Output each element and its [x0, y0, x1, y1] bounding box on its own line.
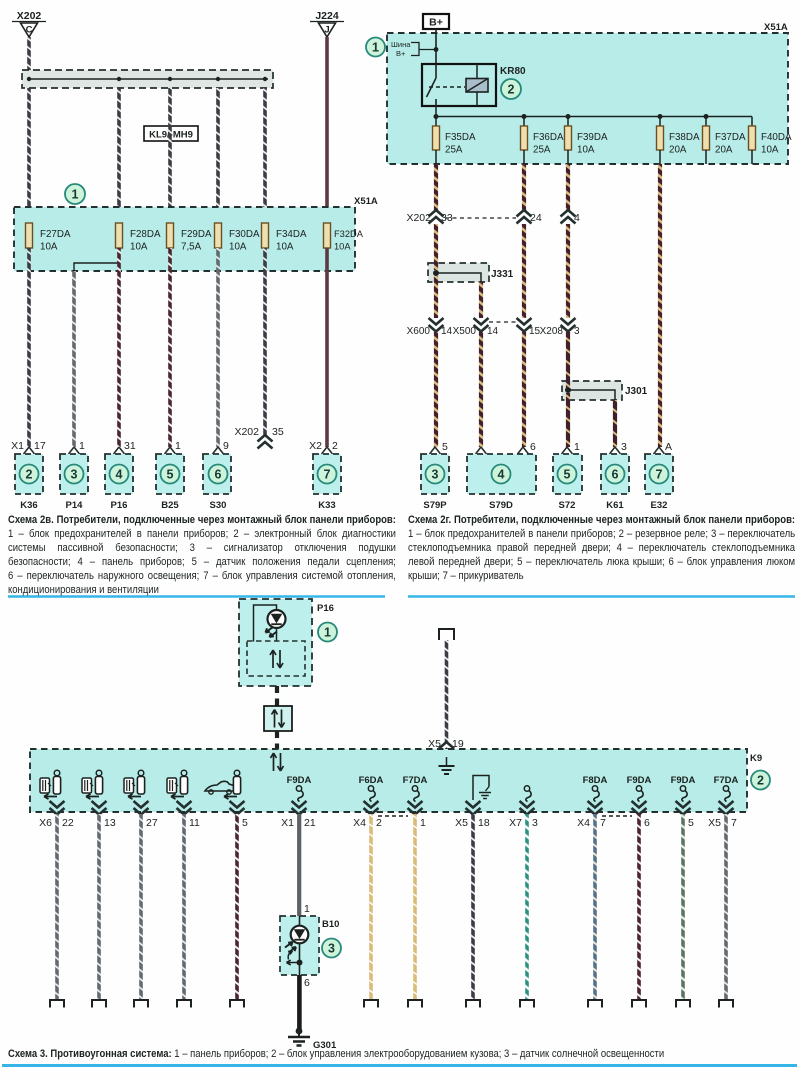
svg-text:E32: E32 — [651, 500, 668, 511]
svg-text:14: 14 — [487, 326, 499, 337]
svg-text:F27DA: F27DA — [40, 229, 71, 240]
svg-text:22: 22 — [62, 817, 74, 829]
svg-text:P14: P14 — [66, 500, 84, 511]
svg-text:K36: K36 — [20, 500, 37, 511]
svg-text:5: 5 — [688, 817, 694, 829]
svg-text:20A: 20A — [715, 145, 733, 156]
svg-text:A: A — [665, 441, 672, 453]
svg-text:S79D: S79D — [489, 500, 513, 511]
svg-text:1: 1 — [324, 626, 331, 640]
svg-text:F39DA: F39DA — [577, 132, 608, 143]
svg-text:X202: X202 — [234, 426, 259, 438]
svg-text:F8DA: F8DA — [583, 775, 608, 786]
svg-text:5: 5 — [564, 468, 571, 482]
svg-text:S30: S30 — [210, 500, 227, 511]
svg-text:5: 5 — [442, 441, 448, 453]
svg-text:F9DA: F9DA — [671, 775, 696, 786]
svg-text:X5: X5 — [708, 817, 721, 829]
svg-text:X4: X4 — [353, 817, 366, 829]
svg-text:F37DA: F37DA — [715, 132, 746, 143]
svg-text:F6DA: F6DA — [359, 775, 384, 786]
svg-text:X5: X5 — [455, 817, 468, 829]
svg-text:P16: P16 — [111, 500, 128, 511]
svg-text:2: 2 — [332, 440, 338, 452]
svg-text:F7DA: F7DA — [714, 775, 739, 786]
svg-text:5: 5 — [242, 817, 248, 829]
svg-text:7: 7 — [731, 817, 737, 829]
svg-text:6: 6 — [215, 468, 222, 482]
svg-text:F35DA: F35DA — [445, 132, 476, 143]
svg-text:F36DA: F36DA — [533, 132, 564, 143]
svg-text:6: 6 — [612, 468, 619, 482]
svg-text:F9DA: F9DA — [287, 775, 312, 786]
svg-text:10A: 10A — [577, 145, 595, 156]
svg-text:5: 5 — [167, 468, 174, 482]
svg-text:F28DA: F28DA — [130, 229, 161, 240]
svg-text:P16: P16 — [317, 603, 334, 614]
svg-text:31: 31 — [124, 440, 136, 452]
svg-text:S72: S72 — [559, 500, 576, 511]
svg-text:10A: 10A — [276, 242, 294, 253]
svg-text:K61: K61 — [606, 500, 624, 511]
svg-text:2: 2 — [508, 83, 515, 97]
svg-text:3: 3 — [432, 468, 439, 482]
svg-text:10A: 10A — [761, 145, 779, 156]
svg-text:X1: X1 — [11, 440, 24, 452]
svg-text:X51A: X51A — [764, 22, 788, 33]
svg-text:13: 13 — [104, 817, 116, 829]
svg-text:X208: X208 — [540, 326, 564, 337]
svg-text:20A: 20A — [669, 145, 687, 156]
svg-text:3: 3 — [71, 468, 78, 482]
svg-text:7: 7 — [324, 468, 331, 482]
svg-text:C: C — [26, 25, 33, 36]
svg-text:F38DA: F38DA — [669, 132, 700, 143]
svg-text:X6: X6 — [39, 817, 52, 829]
svg-text:K33: K33 — [318, 500, 335, 511]
svg-text:11: 11 — [189, 817, 200, 829]
svg-text:X202: X202 — [17, 10, 42, 22]
svg-text:7: 7 — [600, 817, 606, 829]
svg-text:J224: J224 — [315, 10, 339, 22]
svg-text:10A: 10A — [40, 242, 58, 253]
svg-text:1: 1 — [574, 441, 580, 453]
svg-text:X2: X2 — [309, 440, 322, 452]
svg-text:6: 6 — [644, 817, 650, 829]
svg-text:17: 17 — [34, 440, 46, 452]
svg-text:KR80: KR80 — [500, 66, 526, 77]
svg-text:1: 1 — [72, 188, 79, 202]
svg-text:2: 2 — [26, 468, 33, 482]
svg-text:21: 21 — [304, 817, 316, 829]
svg-text:3: 3 — [621, 441, 627, 453]
svg-text:9: 9 — [223, 440, 229, 452]
svg-text:25A: 25A — [445, 145, 463, 156]
svg-text:X202: X202 — [406, 212, 431, 224]
svg-text:1: 1 — [79, 440, 85, 452]
svg-text:4: 4 — [498, 468, 505, 482]
svg-text:7,5A: 7,5A — [181, 242, 202, 253]
svg-text:3: 3 — [328, 942, 335, 956]
svg-text:K9: K9 — [750, 753, 762, 764]
svg-text:3: 3 — [532, 817, 538, 829]
svg-text:35: 35 — [272, 426, 284, 438]
svg-text:X1: X1 — [281, 817, 294, 829]
svg-text:F7DA: F7DA — [403, 775, 428, 786]
svg-text:1: 1 — [420, 817, 426, 829]
svg-text:J: J — [324, 25, 329, 36]
svg-text:3: 3 — [574, 326, 580, 337]
svg-text:10A: 10A — [334, 242, 351, 252]
svg-text:B+: B+ — [429, 17, 443, 29]
svg-text:7: 7 — [656, 468, 663, 482]
svg-text:F29DA: F29DA — [181, 229, 212, 240]
svg-text:F34DA: F34DA — [276, 229, 307, 240]
svg-text:6: 6 — [304, 977, 310, 989]
svg-text:X4: X4 — [577, 817, 590, 829]
svg-text:27: 27 — [146, 817, 158, 829]
svg-text:18: 18 — [478, 817, 490, 829]
svg-text:25A: 25A — [533, 145, 551, 156]
svg-text:2: 2 — [376, 817, 382, 829]
svg-text:6: 6 — [530, 441, 536, 453]
svg-text:F9DA: F9DA — [627, 775, 652, 786]
svg-text:2: 2 — [757, 774, 764, 788]
svg-text:10A: 10A — [130, 242, 148, 253]
svg-text:10A: 10A — [229, 242, 247, 253]
svg-text:1: 1 — [175, 440, 181, 452]
svg-text:F40DA: F40DA — [761, 132, 792, 143]
svg-text:X500: X500 — [453, 326, 477, 337]
svg-text:B+: B+ — [396, 49, 406, 58]
svg-text:F32DA: F32DA — [334, 229, 364, 239]
svg-text:F30DA: F30DA — [229, 229, 260, 240]
svg-text:1: 1 — [304, 903, 310, 915]
svg-text:X51A: X51A — [354, 196, 378, 207]
svg-text:J301: J301 — [625, 386, 648, 397]
svg-text:B25: B25 — [161, 500, 179, 511]
svg-text:1: 1 — [372, 40, 379, 55]
svg-text:Шина: Шина — [391, 40, 411, 49]
svg-text:4: 4 — [116, 468, 123, 482]
svg-text:X7: X7 — [509, 817, 522, 829]
svg-text:S79P: S79P — [423, 500, 447, 511]
svg-text:14: 14 — [441, 326, 453, 337]
svg-text:B10: B10 — [322, 919, 339, 930]
svg-text:X600: X600 — [407, 326, 431, 337]
svg-text:J331: J331 — [491, 269, 514, 280]
